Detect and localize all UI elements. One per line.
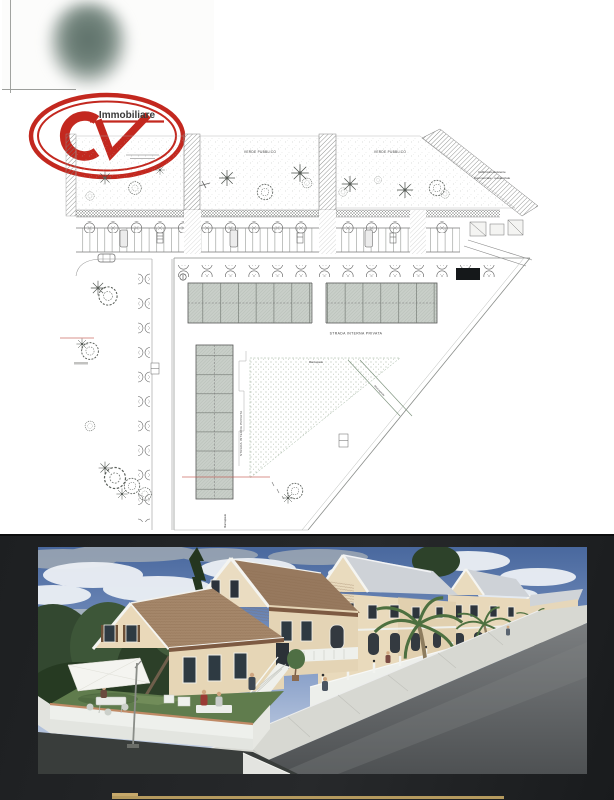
site-plan-drawing: VERDE PUBBLICO VERDE PUBBLICO Fabbricato… [60,126,548,532]
left-park [74,259,172,530]
strada-interna-privata-vertical-label: STRADA INTERNA PRIVATA [239,411,243,456]
rowhouses-vertical-block [196,345,233,499]
main-road-band [76,210,500,262]
blurred-stamp-icon [48,2,128,86]
black-structure [456,268,480,280]
gold-divider [112,796,504,799]
logo-brand-text: Immobiliare [99,110,156,121]
fabbricato-label-line2: Commerciale - residenziale [474,176,511,180]
card-edge-vertical [10,0,11,93]
card-edge-horizontal [2,89,76,90]
rowhouses-horizontal-block [188,282,437,324]
photo-panel [0,534,614,800]
fabbricato-label-line1: Fabbricato Esistente [478,170,506,174]
illegible-tiny-label [74,362,88,365]
survey-marks [272,482,284,499]
document-page: Immobiliare [0,0,614,800]
verde-pubblico-label-2: VERDE PUBBLICO [374,150,406,154]
verde-pubblico-label-1: VERDE PUBBLICO [244,150,276,154]
strada-interna-privata-label: STRADA INTERNA PRIVATA [330,332,383,336]
car-icon [98,254,115,262]
rendering-3d-photo [38,547,587,774]
dotted-triangle-area [250,358,412,478]
street-furniture-mark [151,363,159,374]
small-buildings [470,220,523,236]
reference-symbol [180,274,186,280]
street-furniture-mark-2 [339,434,348,447]
marciapiede-label: Marciapiede [309,360,324,364]
stamp-area [2,0,214,90]
marciapiede-vertical-label: Marciapiede [223,513,227,528]
